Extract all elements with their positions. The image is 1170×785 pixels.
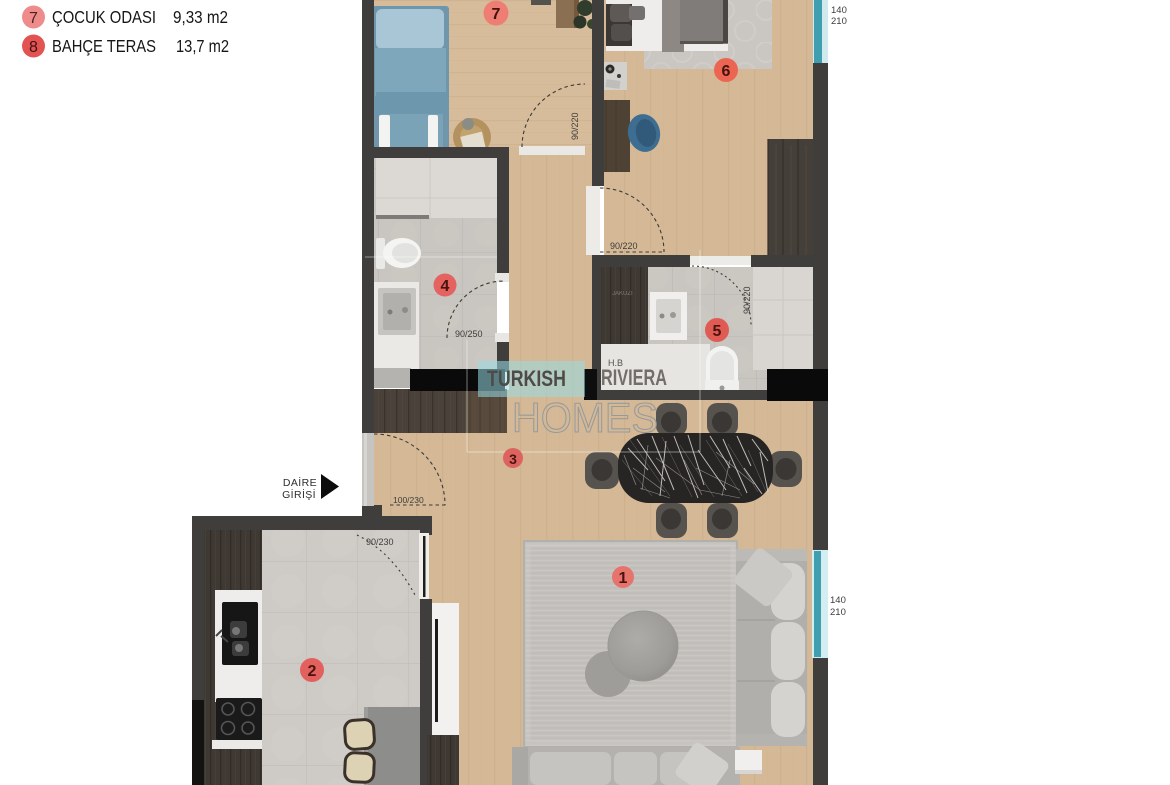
svg-text:140: 140 [831,5,847,16]
svg-text:90/250: 90/250 [455,329,483,339]
svg-text:TURKISH: TURKISH [487,366,566,391]
svg-text:HOMES: HOMES [512,394,658,441]
svg-text:4: 4 [441,278,450,295]
svg-text:5: 5 [713,323,722,340]
svg-text:210: 210 [830,607,846,618]
svg-text:100/230: 100/230 [393,495,424,505]
svg-text:1: 1 [619,570,628,587]
svg-text:90/220: 90/220 [570,112,580,140]
svg-text:RIVIERA: RIVIERA [601,365,667,390]
svg-text:13,7 m2: 13,7 m2 [176,36,229,56]
svg-text:140: 140 [830,595,846,606]
svg-text:7: 7 [29,10,38,27]
svg-text:3: 3 [509,451,517,467]
svg-text:90/220: 90/220 [742,286,752,314]
svg-text:ÇOCUK ODASI: ÇOCUK ODASI [52,7,156,27]
svg-text:210: 210 [831,16,847,27]
svg-text:90/230: 90/230 [366,537,394,547]
svg-text:2: 2 [308,663,317,680]
svg-text:JAKUZI: JAKUZI [612,291,633,297]
svg-text:6: 6 [722,63,731,80]
svg-text:7: 7 [492,6,501,23]
svg-text:9,33 m2: 9,33 m2 [173,7,228,27]
svg-text:GİRİŞİ: GİRİŞİ [282,488,316,501]
svg-text:8: 8 [29,39,38,56]
svg-text:90/220: 90/220 [610,241,638,251]
svg-text:BAHÇE TERAS: BAHÇE TERAS [52,36,156,56]
svg-text:DAİRE: DAİRE [283,476,317,489]
